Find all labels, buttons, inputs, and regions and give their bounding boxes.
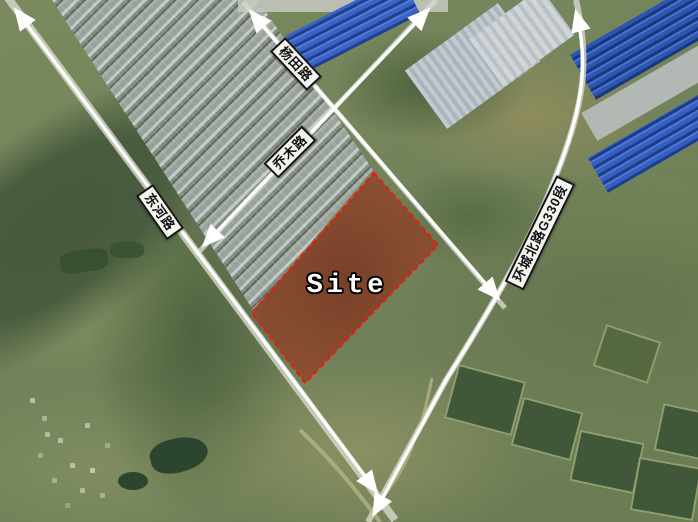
site-location-map: 杨田路 乔木路 东河路 环城北路G330段 Site [0,0,698,522]
site-label: Site [307,271,388,301]
map-annotations-svg [0,0,698,522]
